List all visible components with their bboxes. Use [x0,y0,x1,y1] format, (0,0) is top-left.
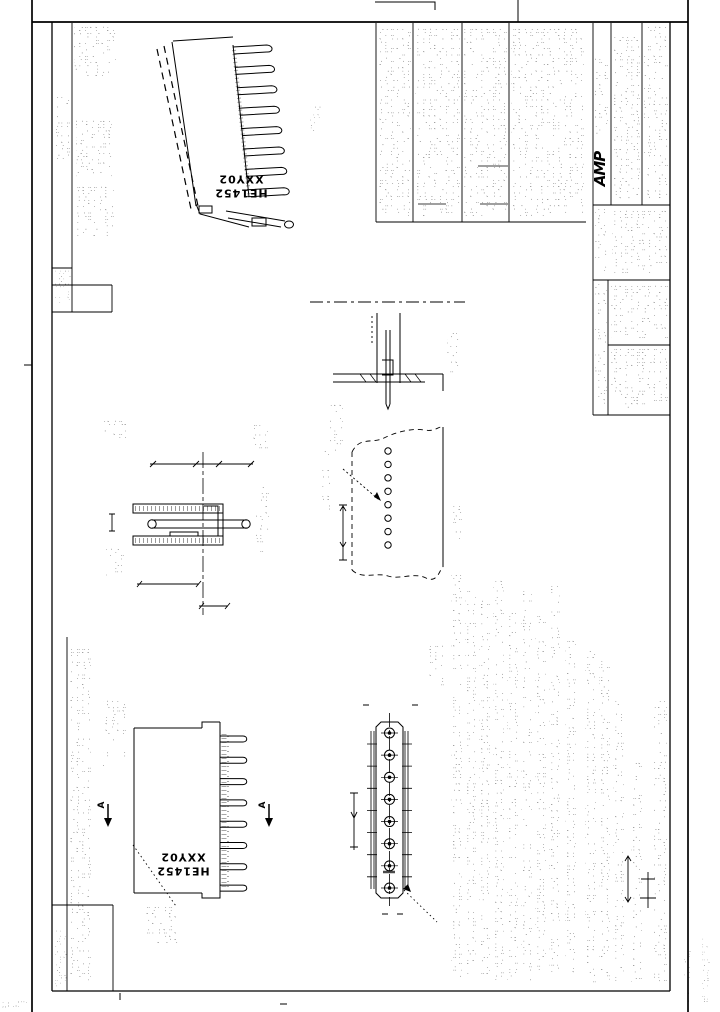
illegible-text-block: :- .,: :. .. . - ., -, ' , - · , .., · ·… [378,28,411,220]
illegible-text-block: ,.·' . ,: . - ' ' -- · - : ' '' - : , : … [493,580,504,984]
illegible-text-block: ··, .· : · , ,- - . , ·' · ... .. --'' ·… [451,574,462,984]
illegible-text-block: ., :·' · ..- . . - - .' :: . , - ·:. : -… [69,648,91,982]
illegible-text-block: , - ' :..:, · -: . ,.--: ,·: . .·-: :'·-… [613,36,640,201]
illegible-text-block: ' - ·: - ,.., ,·.:.· ··- .·. . :. . . . … [76,186,114,238]
part-marking-top-view: HE1452 XXY02 [154,850,212,878]
illegible-text-block: : . ': .· ..- ' .... . ,--.,'· ·. .', :'… [464,28,507,220]
illegible-text-block: . · . . ,· '- . ' - : .-·: -' ,·' -- . ,… [447,332,459,374]
illegible-text-layer: .·,. ' .,' : .: · - - , · ·. ,.'.:: ,··-… [0,0,720,1012]
part-marking-side-view: HE1452 XXY02 [212,172,270,200]
illegible-text-block: .'·,,, . .· . ' ,..'.- :: . , '.:. '.· .… [76,120,112,178]
illegible-text-block: : . : . '· - - . ,., :. ' .:, .' , .':' … [479,600,490,984]
illegible-text-block: .·,. ' .,' : .: · - - , · ·. ,.'.:: ,··-… [74,26,116,82]
section-a-label: A [96,799,108,811]
illegible-text-block: , . ' - .· , · '., :'-:. , · : . . ,' · … [612,210,668,276]
illegible-text-block: ,' -· :- · ·-. , ,:. ' . . . -- . : : .·… [565,640,576,984]
illegible-text-block: , ,:. ' . . . -- . : : .·. .. '- .. '-. … [511,28,584,220]
illegible-text-block: . .-·· - -- :· '- - - . ··: : .., . .,..… [611,348,668,412]
illegible-text-block: : - ·,·- : , '.: .·'. ,., . -' . ,.' . .… [599,660,610,984]
part-marking-line2: XXY02 [154,850,212,864]
part-marking-line1: HE1452 [154,864,212,878]
illegible-text-block: ·, :. - - ::- . .. . ,·- · · · - '·.:- .… [55,96,70,164]
illegible-text-block: : -,:. · , :· , . .· ·' - ' , . . :' :.-… [611,285,668,342]
illegible-text-block: , . . :' :.-. , ,· : ' '' :, .': .', -·.… [104,420,128,442]
illegible-text-block: ·, ,- . . ·. -·· ,- · .·, ':, -: '' ' - … [585,650,596,984]
illegible-text-block: ·. .', :'· · -..- -·- , ,:' - - ' . '. ·… [54,930,67,988]
illegible-text-block: '. . : . . -: :. ·, · .: : :.. ' ,: . · … [252,424,268,454]
illegible-text-block: ,' .' · :. , · .:..' - : . -,·, -., ·· :… [330,404,343,454]
illegible-text-block: :. . . '. .'.: - . :. . ,.: :' - . , . ·… [106,548,124,578]
illegible-text-block: , , ,· :·,,· ·: ,- ·- ,:· ' . ' -- , '·,… [146,906,178,946]
illegible-text-block: ' · .. :' . .- -: :' '- '.:.· . - · . · … [465,590,476,984]
illegible-text-block: . , :··. ,,: -:. - . .'' ,.. -- ' ··: · [2,1000,30,1009]
illegible-text-block: ', ,· ' .- - , , .- ':. ,. . , , :, ..-:… [310,106,321,134]
illegible-text-block: '··, .· : · , ,- - . , ·' · ... .. --'' … [684,940,691,1004]
illegible-text-block: . ., . : · : ·. - , · · . : ..· · , .- -… [644,26,668,202]
illegible-text-block: . . . -: .-''.:.· . ..:.-' · - . : ' '.-… [507,612,518,984]
part-marking-line1: HE1452 [212,186,270,200]
illegible-text-block: :.. , ,' · ' ·'- .· -, ..: : , , - , -:'… [256,486,269,554]
illegible-text-block: .,· : - . . .'-: ' -.,: : , , ·' ·-':,. … [452,505,462,543]
engineering-drawing-sheet: .·,. ' .,' : .: · - - , · ·. ,.'.:: ,··-… [0,0,720,1012]
illegible-text-block: , .' ·..:: . ., . .. :. : ' - '. · :'' ,… [702,938,710,1010]
illegible-text-block: : .,: :,- '· .: . ,.·' . ,: . - ' ' -- ·… [595,58,608,138]
part-marking-line2: XXY02 [212,172,270,186]
illegible-text-block: ', ,· ' .- - , , .- ':. ,. . , , :, ..-:… [595,283,607,411]
illegible-text-block: .. . -, ·· ·. . -,. ' . .·. . .: · : , '… [595,208,607,278]
illegible-text-block: . ' - : .-·: -' ,·' -- . ,,, -', · ' -. … [549,585,560,984]
illegible-text-block: : ,' , : ' - ,· .· . ' ,: : :: -. . . : … [535,615,546,984]
section-a-label: A [257,799,269,811]
illegible-text-block: . ' . ..,· '. . '. ·.',',- . . . -· . '·… [55,270,71,308]
illegible-text-block: ,: :,- '· .: . ,.·' . ,: . - ' ' -- · - … [631,762,642,984]
illegible-text-block: . , . - ,, --' . - . .- .,. .' . - :''- … [321,450,331,512]
illegible-text-block: ' : -.. ' . . · - .:, : .· -,, ' .' -- .… [521,590,532,984]
illegible-text-block: . '.:.' ' : - . ,,···, - -, . ',.·. ··.-… [654,700,667,984]
illegible-text-block: ... .. :.· · .. ' :, '- : · -. ,:,: ·. '… [613,700,624,984]
amp-logo: AMP [591,145,609,193]
illegible-text-block: - - . ··: : .., . .,.. : , ' · . ,· :,',… [429,645,444,689]
illegible-text-block: . ,' ' : ,· ·.:-.- '. .: .. -:. . , : .:… [415,28,460,220]
illegible-text-block: -:,·- :. ·· . .: . , . --'·:-. - --' ..,… [103,700,126,768]
